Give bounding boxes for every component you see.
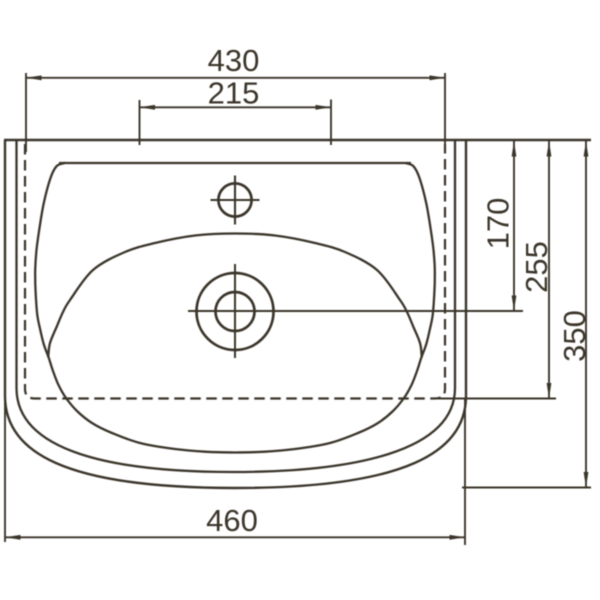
svg-text:350: 350 <box>557 310 592 362</box>
svg-text:255: 255 <box>519 241 554 293</box>
svg-text:170: 170 <box>481 198 516 250</box>
svg-text:215: 215 <box>208 76 260 111</box>
svg-text:460: 460 <box>206 503 258 538</box>
svg-text:430: 430 <box>208 43 260 78</box>
